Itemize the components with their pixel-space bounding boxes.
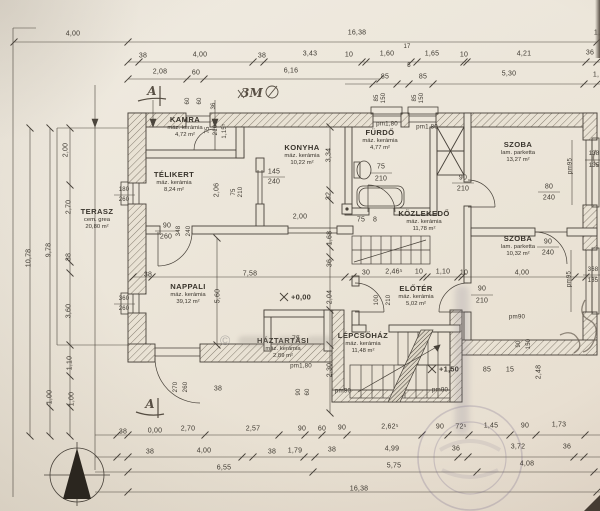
room-area: 4,72 m²	[167, 132, 202, 139]
dim-label: 75	[357, 217, 365, 224]
dim-label: 1,10	[67, 356, 74, 370]
room-material: máz. kerámia	[167, 125, 202, 132]
dim-label: 17	[403, 44, 410, 50]
room-label-konyha: KONYHAmáz. kerámia10,22 m²	[284, 144, 319, 167]
dim-label: 60	[192, 70, 200, 77]
dim-label: 4,00	[515, 270, 529, 277]
dim-label: 38	[146, 449, 154, 456]
dim-label: 60	[197, 97, 203, 104]
dim-label: 240	[268, 179, 280, 186]
dim-label: 2,46⁵	[385, 269, 403, 276]
dim-label: 36	[327, 259, 334, 267]
dim-label: 3,34	[326, 148, 333, 162]
dim-label: 60	[305, 388, 311, 395]
room-name: NAPPALI	[170, 283, 206, 292]
dim-label: 210	[457, 186, 469, 193]
room-area: 13,27 m²	[501, 157, 535, 164]
photo-edge-bottom-right	[584, 495, 600, 511]
dim-label: 60	[185, 97, 191, 104]
dim-label: 1,60	[380, 51, 394, 58]
dim-label: 150	[419, 93, 425, 104]
dim-label: 75	[377, 164, 385, 171]
dim-label: 90	[478, 286, 486, 293]
room-area: 20,80 m²	[81, 224, 114, 231]
dim-label: 100	[374, 295, 380, 306]
dim-label: 90	[436, 424, 444, 431]
dim-label: 36	[563, 444, 571, 451]
dim-label: 7,58	[243, 271, 257, 278]
dim-label: 10	[415, 269, 423, 276]
room-material: máz. kerámia	[284, 153, 319, 160]
room-material: lam. parketta	[501, 150, 535, 157]
dim-label: 135	[588, 278, 599, 284]
dim-label: 90	[296, 388, 302, 395]
dim-label: 4,21	[517, 51, 531, 58]
dim-label: 4,00	[193, 52, 207, 59]
room-name: FÜRDŐ	[362, 129, 397, 138]
dim-label: 1,65	[425, 51, 439, 58]
anno-label: 3M	[241, 86, 263, 100]
dim-label: 240	[543, 195, 555, 202]
pm-label: pm90	[432, 387, 448, 394]
dim-label: 1,	[593, 72, 599, 79]
dim-label: 36	[586, 50, 594, 57]
dim-label: 2,06	[214, 183, 221, 197]
dim-label: 85	[374, 94, 380, 101]
dim-label: 1,45	[484, 423, 498, 430]
anno-label: A	[147, 84, 157, 98]
photo-edge-top-right	[595, 0, 600, 58]
dim-label: 30	[362, 270, 370, 277]
room-name: SZOBA	[501, 235, 535, 244]
dim-label: 3,72	[511, 444, 525, 451]
dim-label: 8	[373, 217, 377, 224]
room-material: máz. kerámia	[398, 294, 433, 301]
dim-label: 240	[186, 226, 192, 237]
dim-label: 36	[452, 446, 460, 453]
room-name: LÉPCSŐHÁZ	[338, 332, 388, 341]
dim-label: 260	[119, 197, 130, 203]
dim-label: 85	[412, 94, 418, 101]
dim-label: 210	[386, 295, 392, 306]
pm-label: pm90	[335, 388, 351, 395]
dim-label: 2,70	[181, 426, 195, 433]
dim-label: 2,70	[66, 200, 73, 214]
dim-label: 210	[238, 187, 244, 198]
room-name: KAMRA	[167, 116, 202, 125]
dim-label: 1,79	[288, 448, 302, 455]
dim-label: 90	[516, 340, 522, 347]
dim-label: 90	[459, 175, 467, 182]
dim-label: 38	[139, 53, 147, 60]
room-area: 4,77 m²	[362, 145, 397, 152]
dim-label: 10,78	[26, 249, 33, 268]
dim-label: 145	[268, 169, 280, 176]
dim-label: 368	[588, 267, 599, 273]
pm-label: pm95	[566, 271, 573, 287]
dim-label: 1,10	[436, 269, 450, 276]
room-material: máz. kerámia	[154, 180, 194, 187]
dim-label: 38	[258, 53, 266, 60]
dim-label: 150	[381, 93, 387, 104]
watermark: ©	[220, 330, 340, 354]
dim-label: 270	[173, 382, 179, 393]
room-material: máz. kerámia	[362, 138, 397, 145]
floor-plan-scan: 4,0016,381,384,00383,43101,601751,65104,…	[0, 0, 600, 511]
room-label-kzleked: KÖZLEKEDŐmáz. kerámia11,78 m²	[398, 210, 449, 233]
dim-label: 38	[214, 386, 222, 393]
pm-label: pm95	[567, 158, 574, 174]
room-material: máz. kerámia	[338, 341, 388, 348]
room-area: 10,22 m²	[284, 160, 319, 167]
room-material: máz. kerámia	[398, 219, 449, 226]
copyright-icon: ©	[220, 332, 230, 348]
dim-label: 0,00	[148, 428, 162, 435]
dim-label: 75	[205, 126, 211, 133]
dim-label: 38	[119, 429, 127, 436]
room-label-szoba: SZOBAlam. parketta10,32 m²	[501, 235, 535, 258]
dim-label: 2,04	[327, 290, 334, 304]
dim-label: 2,48	[536, 365, 543, 379]
dim-label: 348	[176, 226, 182, 237]
dim-label: 2,00	[63, 143, 70, 157]
dim-label: 240	[542, 250, 554, 257]
dim-label: 38	[66, 253, 73, 261]
dim-label: 138	[589, 151, 600, 157]
dim-label: 90	[338, 425, 346, 432]
room-area: 8,24 m²	[154, 187, 194, 194]
dim-label: 4,00	[66, 31, 80, 38]
room-name: ELŐTÉR	[398, 285, 433, 294]
scan-smudge	[455, 285, 469, 435]
level-label: +0,00	[291, 293, 311, 302]
dim-label: 90	[521, 423, 529, 430]
pm-label: pm1,80	[376, 121, 398, 128]
room-area: 5,02 m²	[398, 301, 433, 308]
dim-label: 15	[506, 367, 514, 374]
dim-label: 85	[419, 74, 427, 81]
dim-label: 10	[460, 270, 468, 277]
room-label-szoba: SZOBAlam. parketta13,27 m²	[501, 141, 535, 164]
dim-label: 260	[160, 234, 172, 241]
dim-label: 5	[407, 63, 411, 69]
dim-label: 3,60	[66, 304, 73, 318]
dim-label: 38	[144, 272, 152, 279]
room-label-lpcshz: LÉPCSŐHÁZmáz. kerámia11,48 m²	[338, 332, 388, 355]
dim-label: 80	[545, 184, 553, 191]
pm-label: pm1,80	[416, 124, 438, 131]
dim-label: 90	[163, 223, 171, 230]
dim-label: 90	[544, 239, 552, 246]
dim-label: 16,38	[350, 486, 369, 493]
room-material: lam. parketta	[501, 244, 535, 251]
dim-label: 4,99	[385, 446, 399, 453]
room-name: KONYHA	[284, 144, 319, 153]
dim-label: 10	[460, 52, 468, 59]
room-area: 11,48 m²	[338, 348, 388, 355]
dim-label: 38	[268, 449, 276, 456]
pm-label: pm90	[509, 314, 525, 321]
dim-label: 5,60	[215, 289, 222, 303]
dim-label: 2,30	[327, 363, 334, 377]
room-material: máz. kerámia	[170, 292, 206, 299]
dim-label: 2,00	[293, 214, 307, 221]
dim-label: 9,78	[46, 243, 53, 257]
pm-label: pm1,80	[290, 363, 312, 370]
dim-label: 5,30	[502, 71, 516, 78]
room-name: TERASZ	[81, 208, 114, 217]
anno-label: A	[145, 397, 155, 411]
dim-label: 210	[375, 176, 387, 183]
room-label-tlikert: TÉLIKERTmáz. kerámia8,24 m²	[154, 171, 194, 194]
dim-label: 135	[589, 163, 600, 169]
room-material: cem. grea	[81, 217, 114, 224]
label-layer: 4,0016,381,384,00383,43101,601751,65104,…	[0, 0, 600, 511]
dim-label: 85	[483, 367, 491, 374]
dim-label: 2,08	[153, 69, 167, 76]
room-label-eltr: ELŐTÉRmáz. kerámia5,02 m²	[398, 285, 433, 308]
dim-label: 1,73	[552, 422, 566, 429]
dim-label: 3,43	[303, 51, 317, 58]
room-name: TÉLIKERT	[154, 171, 194, 180]
dim-label: 60	[318, 426, 326, 433]
dim-label: 6,55	[217, 465, 231, 472]
dim-label: 4,08	[520, 461, 534, 468]
dim-label: 5,75	[387, 463, 401, 470]
dim-label: 210	[476, 298, 488, 305]
room-label-terasz: TERASZcem. grea20,80 m²	[81, 208, 114, 231]
room-area: 11,78 m²	[398, 226, 449, 233]
dim-label: 38	[328, 447, 336, 454]
dim-label: 90	[298, 426, 306, 433]
dim-label: 85	[381, 74, 389, 81]
dim-label: 260	[183, 382, 189, 393]
dim-label: 36	[211, 102, 217, 109]
dim-label: 2,57	[246, 426, 260, 433]
room-label-nappali: NAPPALImáz. kerámia39,12 m²	[170, 283, 206, 306]
dim-label: 210	[213, 125, 219, 136]
dim-label: 75	[231, 188, 237, 195]
dim-label: 1,00	[47, 390, 54, 404]
dim-label: 4,00	[197, 448, 211, 455]
dim-label: 32	[326, 192, 333, 200]
room-area: 39,12 m²	[170, 299, 206, 306]
dim-label: 6,16	[284, 68, 298, 75]
room-name: SZOBA	[501, 141, 535, 150]
dim-label: 1,68	[327, 231, 334, 245]
room-area: 10,32 m²	[501, 251, 535, 258]
dim-label: 180	[119, 187, 130, 193]
room-name: KÖZLEKEDŐ	[398, 210, 449, 219]
dim-label: 16,38	[348, 30, 367, 37]
dim-label: 360	[119, 296, 130, 302]
dim-label: 260	[119, 306, 130, 312]
dim-label: 150	[526, 339, 532, 350]
dim-label: 1,15⁵	[222, 123, 228, 138]
dim-label: 10	[345, 52, 353, 59]
room-label-kamra: KAMRAmáz. kerámia4,72 m²	[167, 116, 202, 139]
dim-label: 1,00	[69, 392, 76, 406]
dim-label: 2,62⁵	[381, 424, 399, 431]
room-label-frd: FÜRDŐmáz. kerámia4,77 m²	[362, 129, 397, 152]
